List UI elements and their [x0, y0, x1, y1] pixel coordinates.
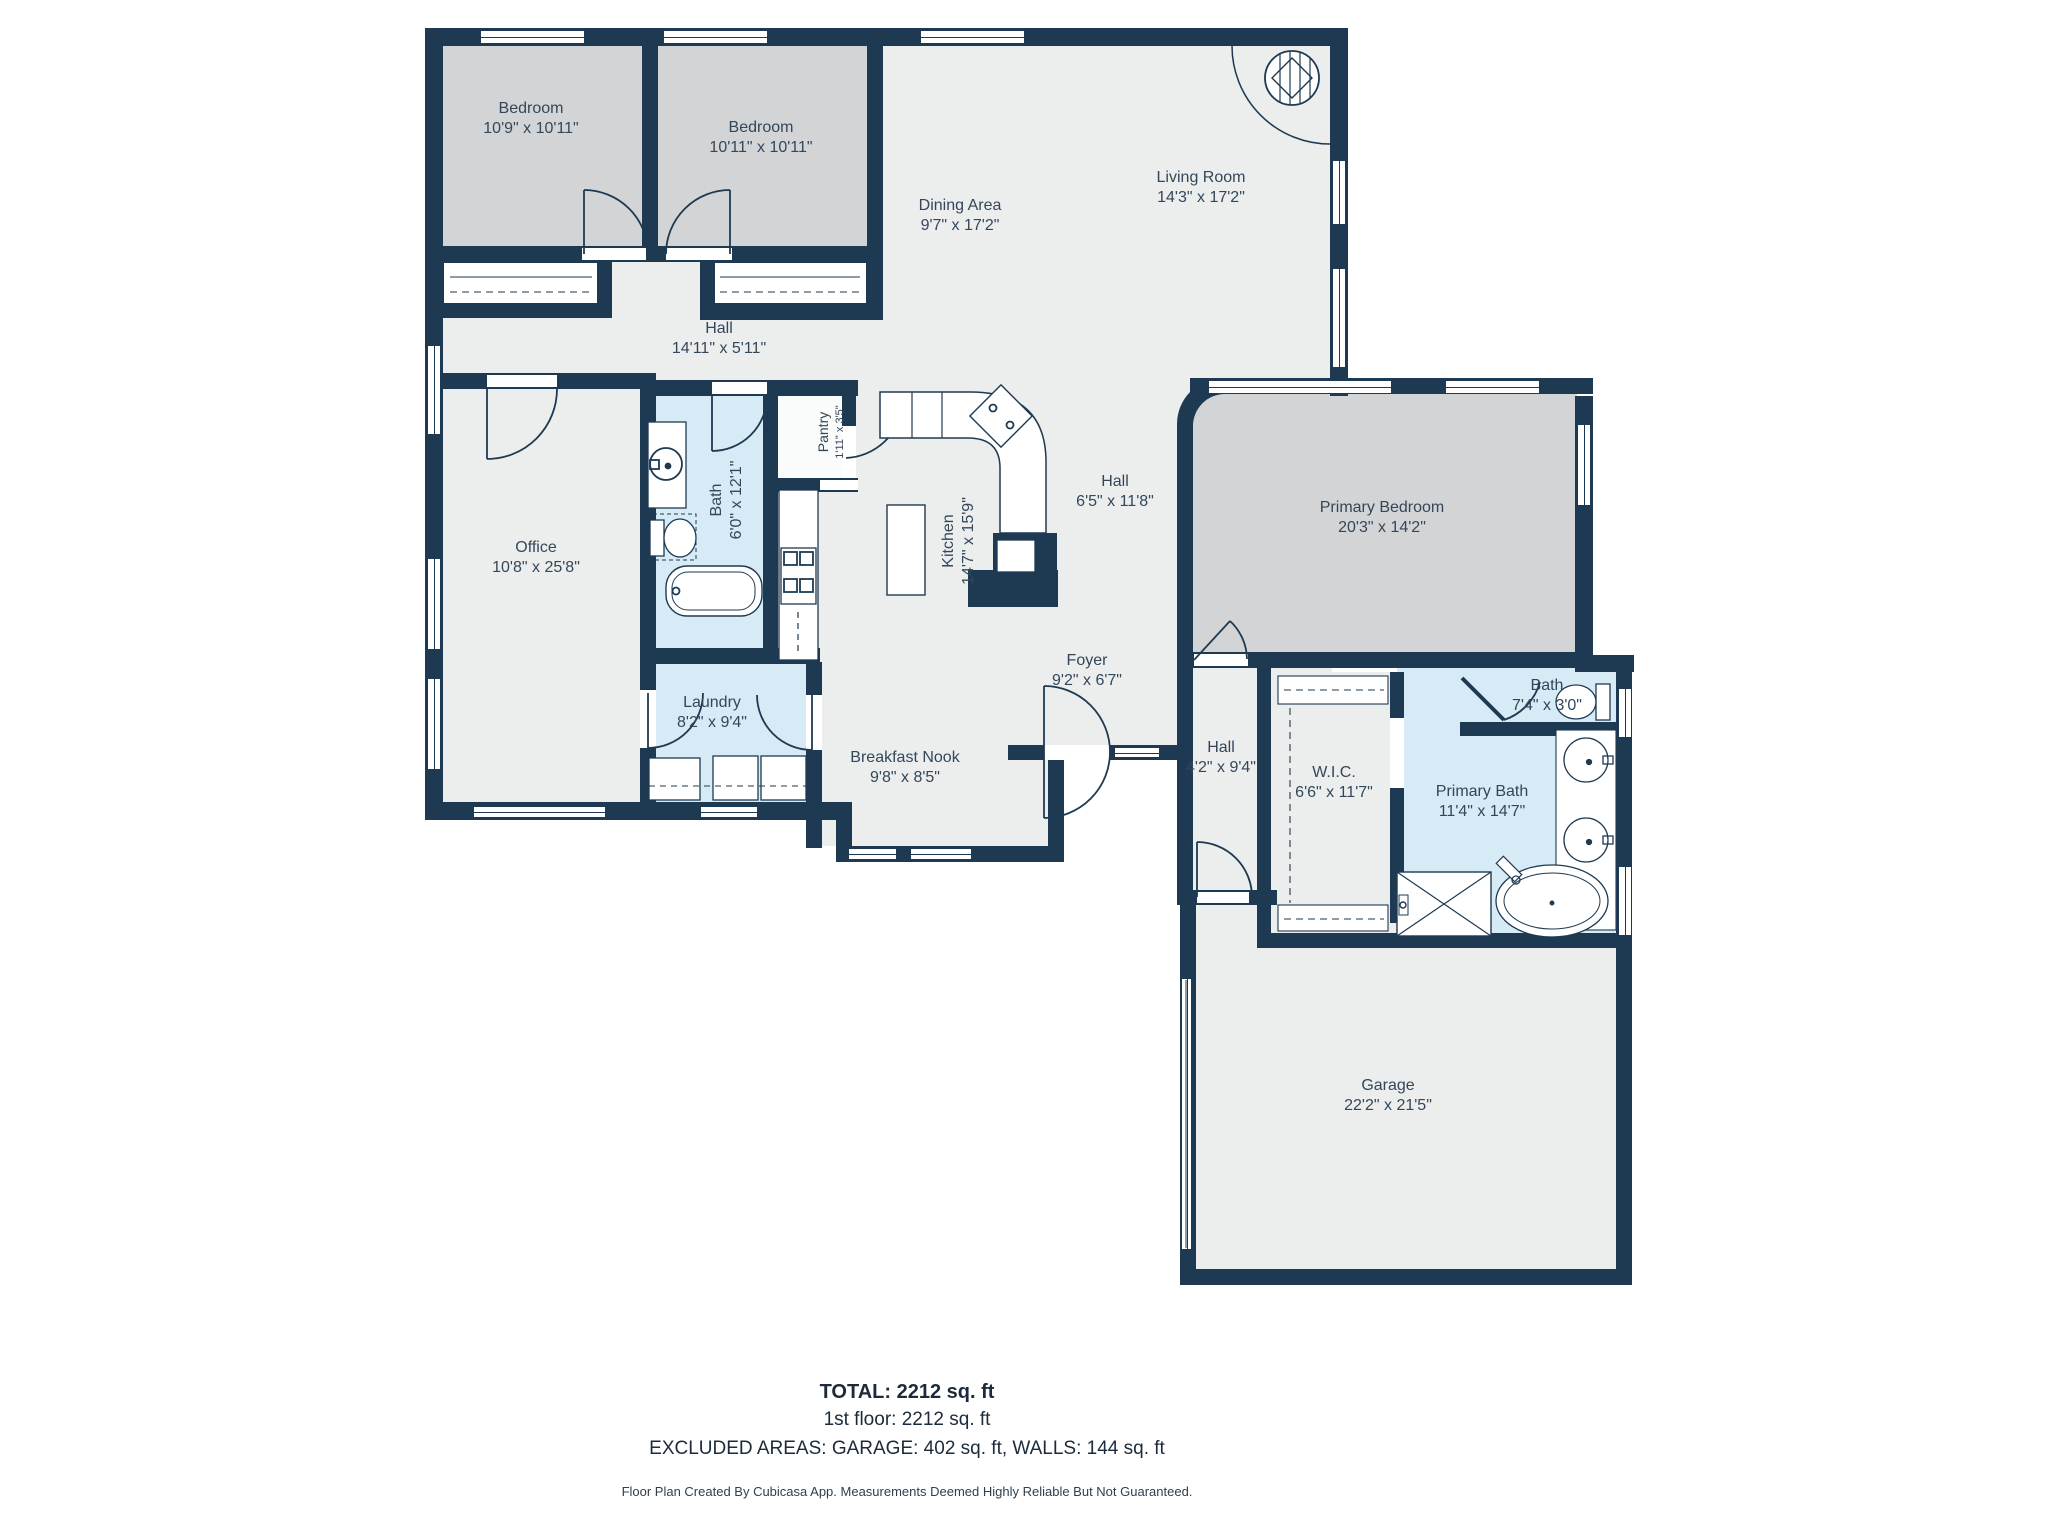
wall — [598, 262, 612, 318]
door-opening — [1197, 892, 1249, 903]
total-area-text: TOTAL: 2212 sq. ft — [457, 1378, 1357, 1406]
window — [1208, 380, 1392, 394]
disclaimer-text: Floor Plan Created By Cubicasa App. Meas… — [457, 1484, 1357, 1499]
window — [1114, 747, 1160, 758]
door-opening — [666, 248, 732, 260]
closet-bedroom-1 — [443, 262, 598, 304]
window — [1577, 424, 1591, 506]
window — [1332, 160, 1346, 225]
wall — [806, 662, 822, 848]
floor-bedroom-1 — [443, 46, 642, 246]
wall — [640, 648, 820, 664]
room-label-foyer: Foyer9'2" x 6'7" — [1052, 651, 1122, 691]
door-opening — [806, 695, 822, 750]
window — [663, 30, 768, 44]
wall — [867, 46, 883, 320]
window — [700, 806, 758, 818]
room-label-bath-2: Bath7'4" x 3'0" — [1512, 676, 1582, 716]
door-opening — [712, 382, 767, 394]
wall — [642, 46, 658, 246]
door-opening — [820, 480, 858, 490]
room-label-laundry: Laundry8'2" x 9'4" — [677, 693, 747, 733]
first-floor-area-text: 1st floor: 2212 sq. ft — [457, 1406, 1357, 1434]
wall — [1190, 652, 1593, 668]
window — [1445, 380, 1540, 394]
window — [910, 848, 972, 860]
wall — [1008, 745, 1048, 760]
window — [1181, 978, 1192, 1250]
window — [427, 558, 441, 650]
window — [848, 848, 897, 860]
door-opening — [487, 375, 557, 387]
room-label-primary-bedroom: Primary Bedroom20'3" x 14'2" — [1320, 498, 1444, 538]
wall — [1616, 948, 1632, 1285]
room-label-dining-area: Dining Area9'7" x 17'2" — [919, 196, 1002, 236]
wall — [1460, 722, 1616, 736]
window — [473, 806, 606, 818]
wall — [1048, 745, 1064, 862]
wall — [640, 373, 656, 664]
window — [920, 30, 1025, 44]
wall — [1390, 672, 1404, 923]
excluded-areas-text: EXCLUDED AREAS: GARAGE: 402 sq. ft, WALL… — [457, 1434, 1357, 1463]
door-opening — [582, 248, 646, 260]
room-label-bath-1: Bath6'0" x 12'1" — [707, 461, 747, 540]
wall — [1180, 1269, 1632, 1285]
wall — [1593, 655, 1634, 672]
room-label-primary-bath: Primary Bath11'4" x 14'7" — [1436, 782, 1528, 822]
room-label-bedroom-2: Bedroom10'11" x 10'11" — [709, 118, 812, 158]
window — [1618, 688, 1632, 738]
room-label-living-room: Living Room14'3" x 17'2" — [1157, 168, 1246, 208]
wall — [425, 246, 883, 262]
window — [1618, 866, 1632, 936]
wall — [1257, 933, 1616, 948]
room-label-hall-north: Hall14'11" x 5'11" — [672, 319, 766, 359]
wall — [778, 380, 858, 396]
window — [427, 345, 441, 435]
room-label-breakfast-nook: Breakfast Nook9'8" x 8'5" — [850, 748, 959, 788]
wall — [425, 304, 612, 318]
area-summary: TOTAL: 2212 sq. ft 1st floor: 2212 sq. f… — [457, 1378, 1357, 1463]
floor-plan-page: Bedroom10'9" x 10'11" Bedroom10'11" x 10… — [0, 0, 2048, 1536]
door-opening — [1390, 718, 1404, 788]
wall — [1257, 655, 1271, 905]
room-label-pantry: Pantry1'11" x 3'5" — [815, 405, 849, 458]
door-opening — [640, 690, 656, 748]
window — [480, 30, 585, 44]
room-label-kitchen: Kitchen14'7" x 15'9" — [939, 497, 979, 585]
closet-bedroom-2 — [714, 262, 867, 304]
room-label-hall-south: Hall4'2" x 9'4" — [1186, 738, 1256, 778]
door-opening — [1194, 654, 1248, 666]
wall — [700, 304, 883, 320]
room-label-wic: W.I.C.6'6" x 11'7" — [1295, 763, 1373, 803]
room-label-garage: Garage22'2" x 21'5" — [1344, 1076, 1432, 1116]
door-opening — [1044, 745, 1110, 760]
room-label-hall-center: Hall6'5" x 11'8" — [1076, 472, 1154, 512]
room-label-office: Office10'8" x 25'8" — [492, 538, 580, 578]
window — [1332, 268, 1346, 368]
window — [427, 678, 441, 770]
room-label-bedroom-1: Bedroom10'9" x 10'11" — [483, 99, 578, 139]
wall — [993, 533, 1057, 607]
wall — [763, 380, 778, 662]
